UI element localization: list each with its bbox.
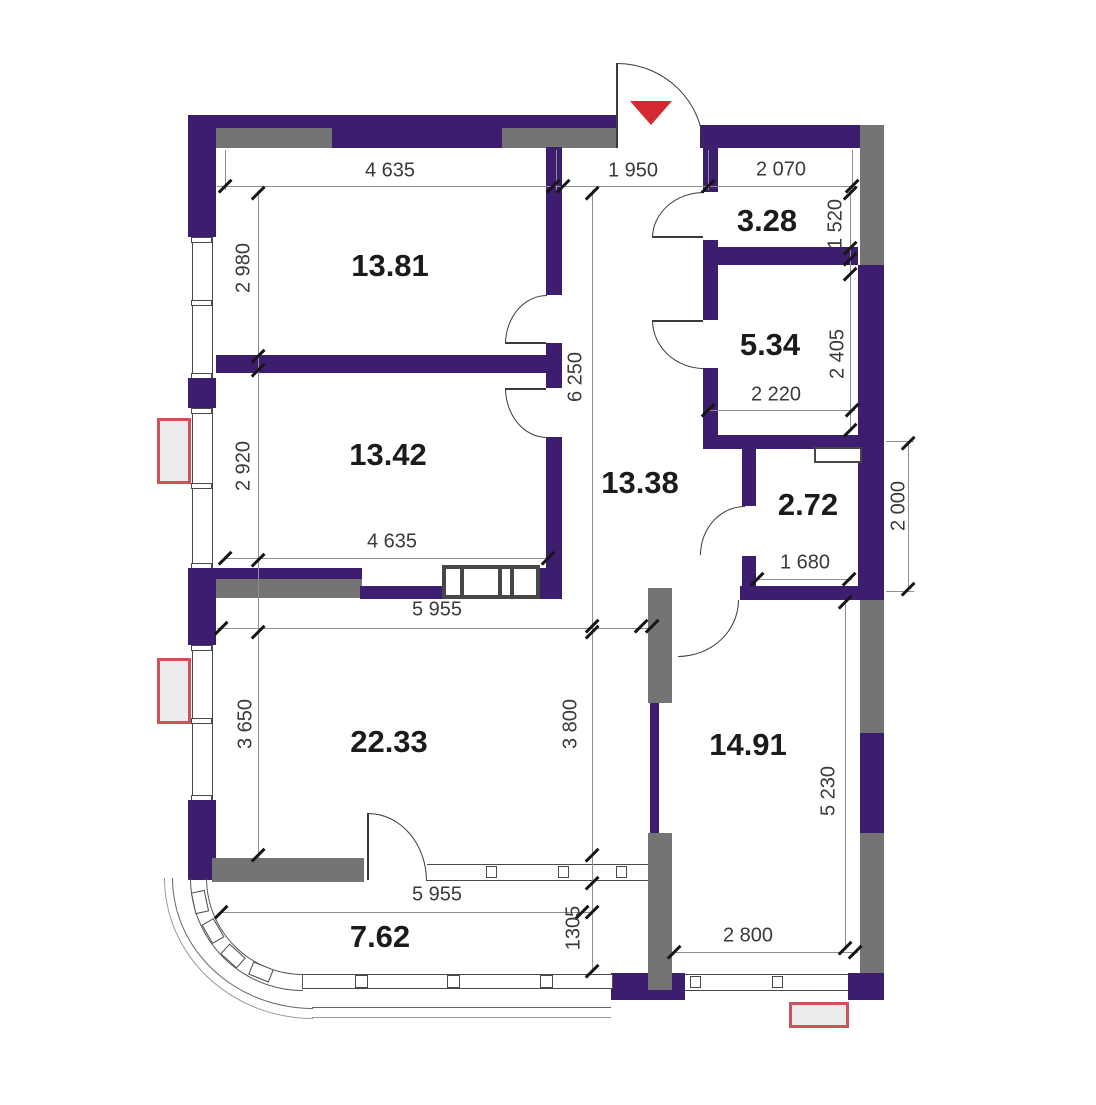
wardrobe-divider [460, 567, 464, 597]
door-arc [505, 295, 547, 344]
dimension-line [225, 558, 548, 559]
dimension-label-2220: 2 220 [751, 384, 801, 407]
window-mullion [486, 866, 497, 878]
ac-unit-outline [157, 658, 191, 724]
window-mullion [191, 300, 212, 306]
area-label-13-38: 13.38 [601, 465, 679, 501]
dimension-label-5955-bottom: 5 955 [412, 884, 462, 907]
window [685, 974, 848, 991]
door-arc [368, 813, 427, 881]
dimension-label-1950: 1 950 [608, 160, 658, 183]
wall-segment [188, 568, 216, 645]
area-label-13-81: 13.81 [351, 248, 429, 284]
dimension-label-6250: 6 250 [565, 352, 588, 402]
door-arc [505, 388, 547, 438]
door-leaf [505, 342, 546, 344]
dimension-label-5955-top: 5 955 [412, 599, 462, 622]
dimension-line [886, 591, 914, 592]
dimension-label-1680: 1 680 [780, 552, 830, 575]
wall-segment [860, 733, 884, 833]
area-label-3-28: 3.28 [737, 203, 797, 239]
dimension-label-5230: 5 230 [818, 766, 841, 816]
door-leaf [652, 236, 703, 238]
area-label-14-91: 14.91 [709, 727, 787, 763]
dimension-line [850, 190, 851, 432]
wardrobe-symbol [442, 565, 540, 599]
balcony-outer-edge [312, 1007, 611, 1008]
wall-segment [216, 568, 362, 579]
floor-plan: 4 635 1 950 2 070 2 980 2 920 4 635 6 25… [0, 0, 1096, 1105]
door-arc [652, 192, 704, 238]
area-label-5-34: 5.34 [740, 327, 800, 363]
dimension-line [217, 186, 858, 187]
ac-unit-outline [157, 418, 191, 484]
entrance-arrow-icon [630, 101, 672, 125]
wall-segment [546, 343, 562, 388]
dimension-label-3650: 3 650 [235, 699, 258, 749]
window-mullion [191, 237, 212, 243]
door-arc [652, 320, 704, 369]
wall-segment [332, 128, 502, 148]
dimension-line [672, 952, 858, 953]
wall-segment [718, 247, 858, 265]
dimension-line [756, 579, 852, 580]
wardrobe-divider [510, 567, 514, 597]
dimension-label-1305: 1305 [563, 906, 586, 951]
window-mullion [447, 975, 460, 988]
window-mullion [772, 976, 783, 988]
window [192, 237, 213, 378]
gray-wall-segment [860, 600, 884, 733]
dimension-line [220, 912, 590, 913]
area-label-7-62: 7.62 [350, 919, 410, 955]
vent-box [814, 447, 862, 463]
window-mullion [191, 718, 212, 724]
gray-wall-segment [216, 579, 362, 598]
window-mullion [616, 866, 627, 878]
window-mullion [540, 975, 553, 988]
door-leaf [505, 388, 546, 390]
dimension-line [708, 410, 855, 411]
gray-wall-segment [502, 128, 617, 148]
gray-wall-segment [204, 128, 332, 148]
dimension-line [217, 628, 650, 629]
wall-segment [188, 378, 216, 408]
wall-segment [650, 703, 659, 833]
gray-wall-segment [860, 833, 884, 978]
door-leaf [652, 320, 703, 322]
dimension-line [845, 600, 846, 950]
window-mullion [558, 866, 569, 878]
dimension-label-3800: 3 800 [560, 699, 583, 749]
dimension-label-2405: 2 405 [827, 329, 850, 379]
wall-segment [848, 973, 884, 1000]
door-arc [700, 506, 745, 555]
gray-wall-segment [648, 833, 672, 990]
dimension-label-top-4635: 4 635 [365, 160, 415, 183]
ac-unit-outline [789, 1002, 849, 1028]
gray-wall-segment [648, 588, 672, 703]
wall-segment [188, 115, 618, 129]
balcony-outer-edge [312, 1017, 611, 1018]
window-mullion [191, 645, 212, 651]
area-label-2-72: 2.72 [778, 487, 838, 523]
dimension-label-2000: 2 000 [888, 481, 911, 531]
window-mullion [355, 975, 368, 988]
wall-segment [742, 443, 756, 506]
wardrobe-divider [498, 567, 502, 597]
window-mullion [690, 976, 701, 988]
dimension-label-1520: 1 520 [825, 199, 848, 249]
dimension-label-2920: 2 920 [233, 441, 256, 491]
window-mullion [191, 408, 212, 414]
wall-segment [188, 115, 216, 237]
window-mullion [191, 483, 212, 489]
wall-segment [740, 586, 884, 600]
dimension-line [258, 190, 259, 858]
area-label-22-33: 22.33 [350, 724, 428, 760]
wall-segment [546, 147, 562, 295]
area-label-13-42: 13.42 [349, 437, 427, 473]
wall-segment [700, 125, 860, 148]
door-arc [678, 600, 739, 657]
dimension-label-2800: 2 800 [723, 925, 773, 948]
wall-segment [858, 265, 884, 595]
gray-wall-segment [860, 125, 884, 273]
dimension-label-2070: 2 070 [756, 159, 806, 182]
dimension-label-bottom-4635: 4 635 [367, 531, 417, 554]
wall-segment [703, 240, 718, 320]
window [427, 864, 648, 881]
dimension-label-2980: 2 980 [233, 243, 256, 293]
